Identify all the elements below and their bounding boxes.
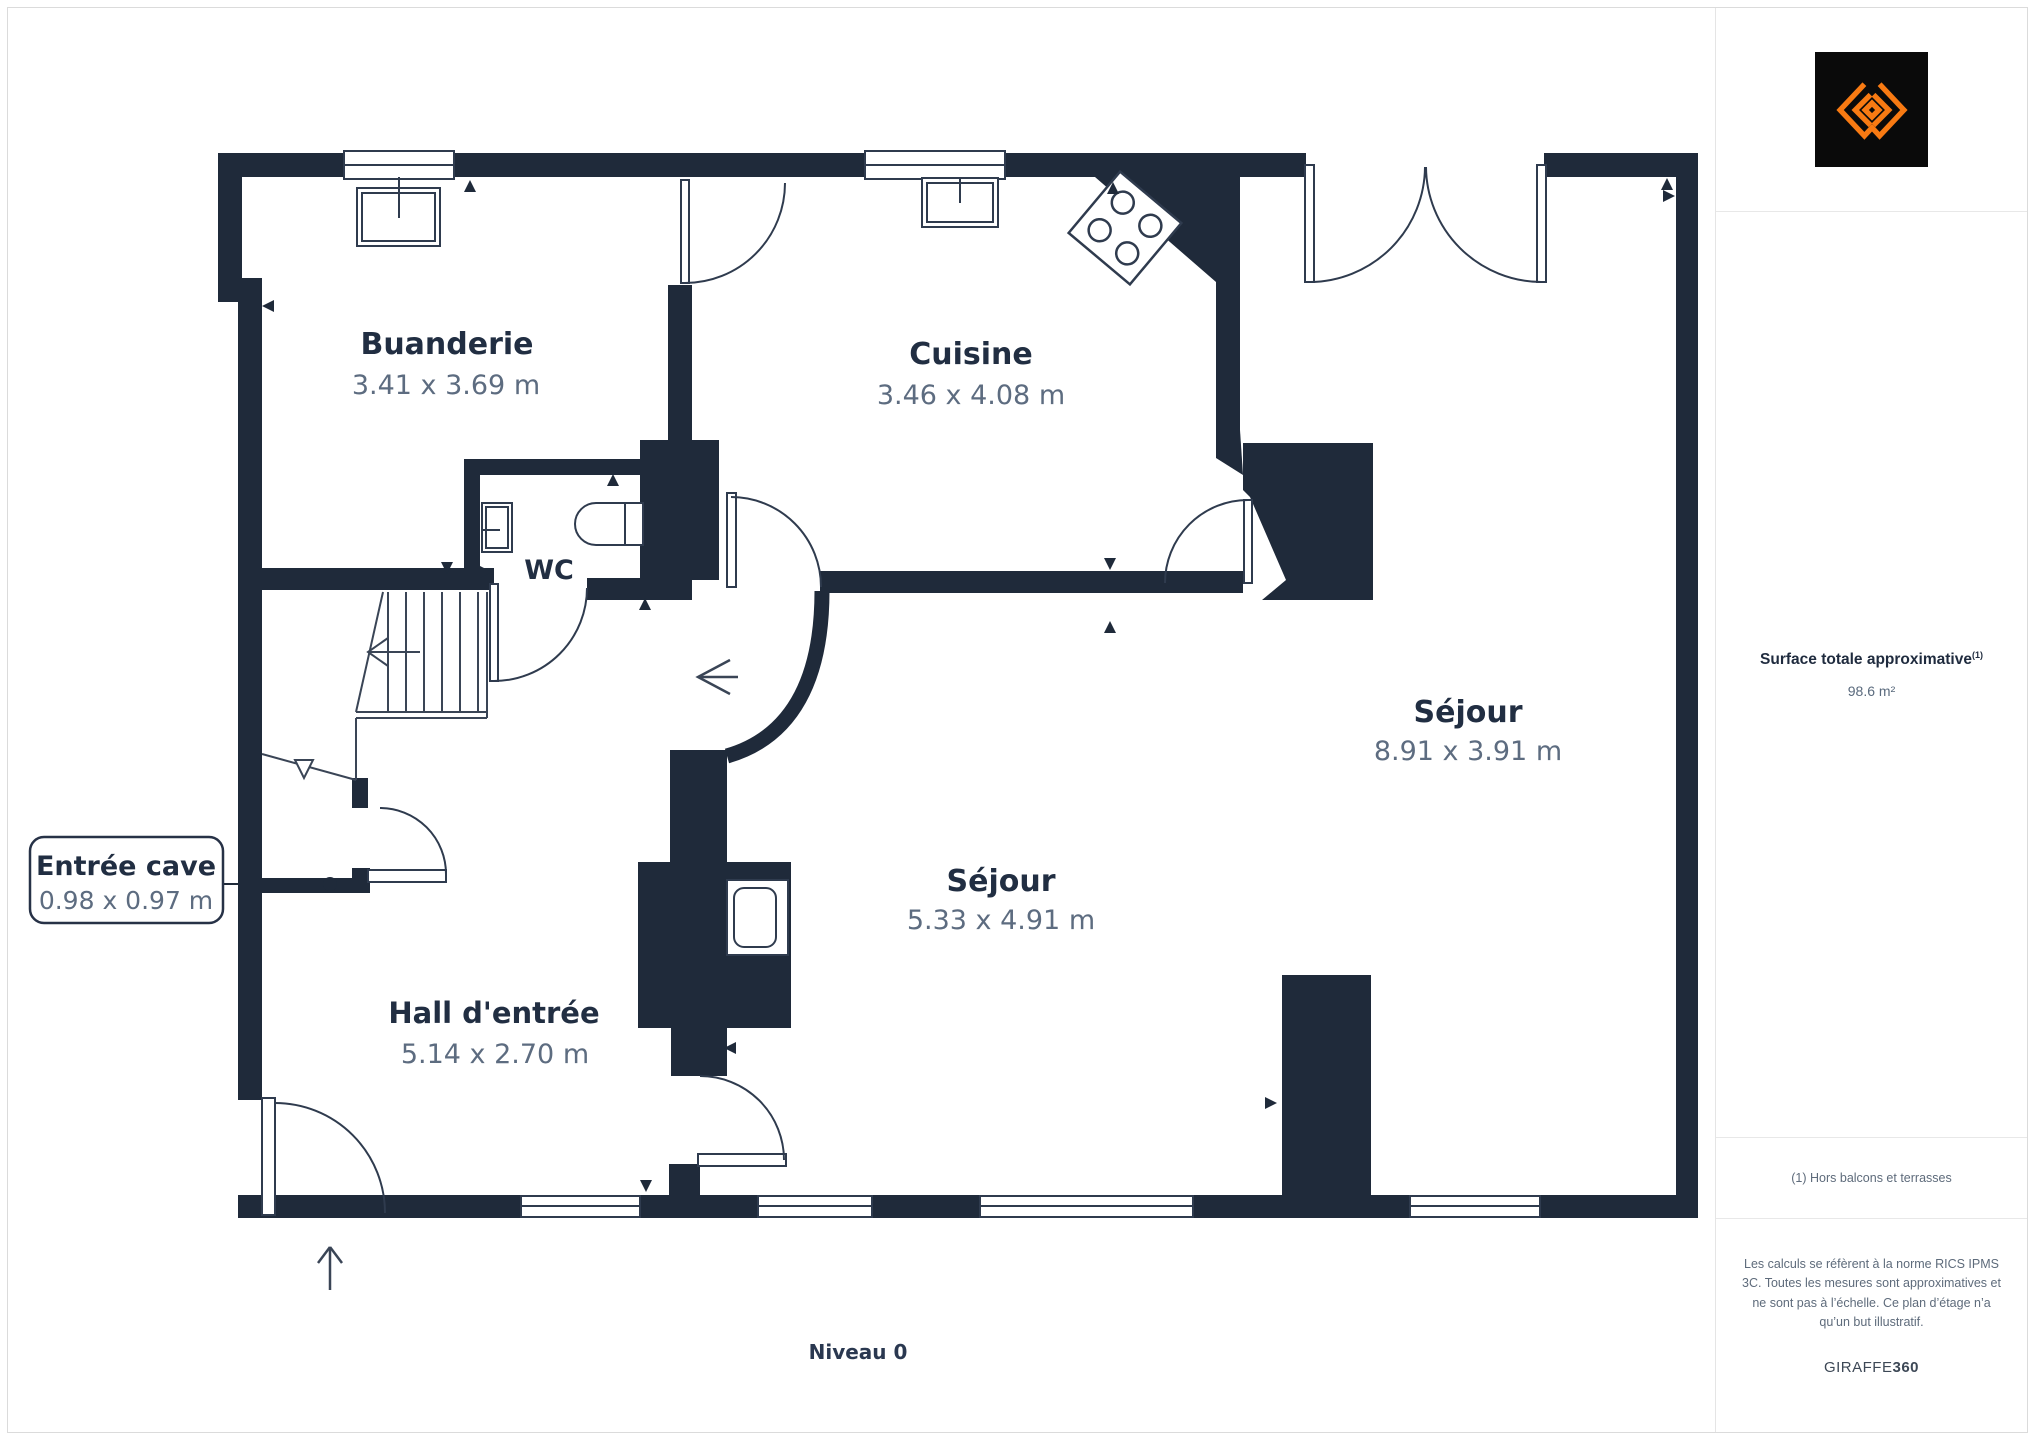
logo-section — [1716, 8, 2027, 212]
room-dims-sejour-center: 5.33 x 4.91 m — [907, 905, 1095, 936]
stairs-icon — [262, 592, 487, 780]
roof-window-icon — [357, 177, 998, 246]
surface-footnote-marker: (1) — [1972, 650, 1983, 660]
footnote-text: (1) Hors balcons et terrasses — [1791, 1171, 1951, 1185]
brand-regular: GIRAFFE — [1824, 1359, 1893, 1376]
room-dims-sejour-right: 8.91 x 3.91 m — [1374, 736, 1562, 767]
toilet-icon — [575, 503, 643, 545]
fireplace-niche — [727, 880, 788, 955]
hall-arrow-icon — [698, 660, 738, 694]
room-label-buanderie: Buanderie — [360, 327, 533, 362]
floorplan-page: Entrée cave 0.98 x 0.97 m Buanderie 3.41… — [0, 0, 2035, 1440]
room-label-sejour-right: Séjour — [1414, 695, 1523, 730]
cave-label-box: Entrée cave 0.98 x 0.97 m — [30, 837, 223, 923]
curved-wall — [727, 591, 822, 756]
giraffe360-logo — [1815, 52, 1928, 167]
footnote-section: (1) Hors balcons et terrasses — [1716, 1138, 2027, 1219]
giraffe360-logo-icon — [1831, 72, 1913, 148]
door-cuisine-sejour — [727, 493, 821, 587]
room-dims: 0.98 x 0.97 m — [39, 886, 213, 915]
door-hall-sejour — [698, 1076, 786, 1166]
info-sidebar: Surface totale approximative(1) 98.6 m² … — [1715, 8, 2027, 1432]
surface-total-value: 98.6 m² — [1848, 683, 1895, 699]
room-label-sejour-center: Séjour — [947, 864, 1056, 899]
legal-section: Les calculs se réfèrent à la norme RICS … — [1716, 1219, 2027, 1376]
room-label-cuisine: Cuisine — [909, 337, 1033, 372]
surface-label-text: Surface totale approximative — [1760, 651, 1972, 668]
legal-text: Les calculs se réfèrent à la norme RICS … — [1740, 1255, 2003, 1333]
surface-section: Surface totale approximative(1) 98.6 m² — [1716, 212, 2027, 1138]
door-cuisine-east — [1165, 500, 1252, 583]
room-label-wc: WC — [524, 555, 574, 586]
entrance-arrow-icon — [318, 1247, 342, 1290]
level-label: Niveau 0 — [809, 1340, 908, 1364]
surface-total-label: Surface totale approximative(1) — [1760, 650, 1983, 669]
room-label-hall: Hall d'entrée — [388, 996, 599, 1030]
double-door — [1305, 165, 1546, 282]
brand-wordmark: GIRAFFE360 — [1740, 1359, 2003, 1376]
brand-bold: 360 — [1892, 1359, 1919, 1376]
room-dims-buanderie: 3.41 x 3.69 m — [352, 370, 540, 401]
room-dims-hall: 5.14 x 2.70 m — [401, 1039, 589, 1070]
room-label: Entrée cave — [36, 851, 216, 882]
door-buanderie-cuisine — [681, 180, 785, 283]
door-wc — [490, 584, 587, 681]
sink-icon — [482, 503, 512, 552]
room-dims-cuisine: 3.46 x 4.08 m — [877, 380, 1065, 411]
